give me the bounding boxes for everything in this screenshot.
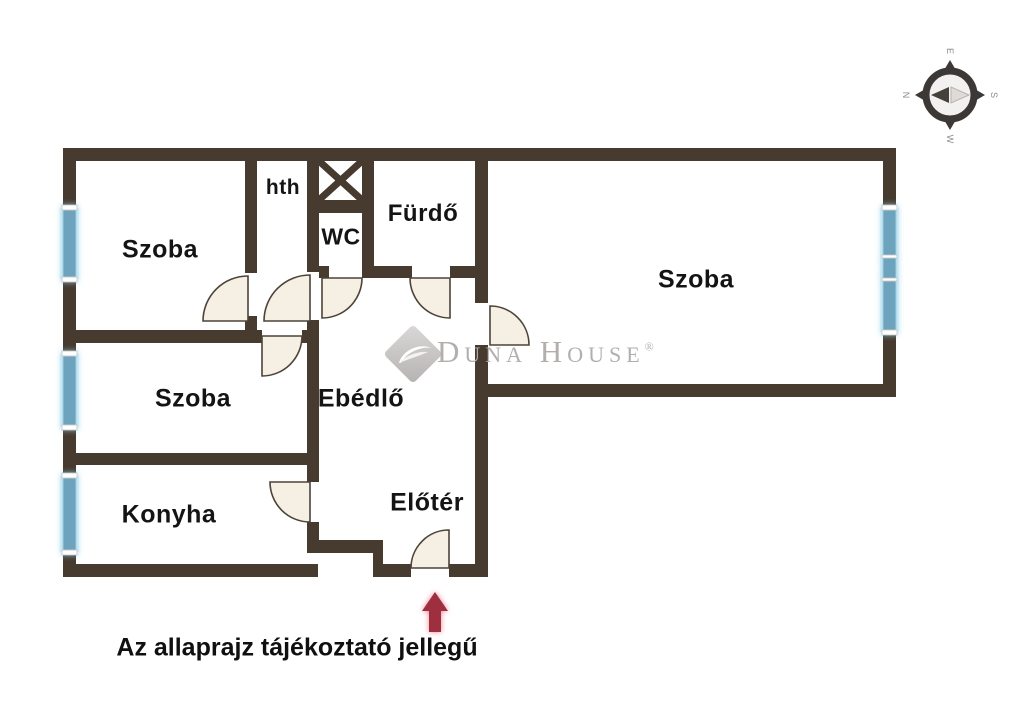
- door-swing-wc: [322, 278, 362, 318]
- room-label-eloter: Előtér: [390, 489, 464, 518]
- door-swing-hth: [264, 275, 310, 321]
- room-label-szoba-middle: Szoba: [155, 385, 231, 414]
- floorplan-page: E S W N Szoba hth WC Fürdő Szoba Ebédlő …: [0, 0, 1024, 710]
- room-label-hth: hth: [266, 176, 300, 200]
- watermark-brand: Duna House: [437, 334, 645, 369]
- window-marker: [63, 210, 76, 277]
- compass-letter-top: E: [945, 48, 955, 54]
- watermark-text: Duna House®: [437, 334, 654, 370]
- compass-letter-left: N: [901, 92, 911, 99]
- room-label-furdo: Fürdő: [388, 200, 458, 228]
- compass-letter-bottom: W: [945, 135, 955, 144]
- registered-mark: ®: [645, 340, 654, 354]
- door-swing-szoba-top: [203, 276, 248, 321]
- window-marker: [883, 281, 896, 330]
- entrance-arrow-icon: [422, 592, 448, 632]
- disclaimer-text: Az allaprajz tájékoztató jellegű: [116, 634, 477, 663]
- room-label-wc: WC: [321, 224, 360, 251]
- room-label-konyha: Konyha: [122, 501, 217, 530]
- door-swing-furdo: [410, 278, 450, 318]
- room-label-szoba-top-left: Szoba: [122, 236, 198, 265]
- window-marker: [883, 258, 896, 279]
- room-label-szoba-right: Szoba: [658, 266, 734, 295]
- window-marker: [63, 478, 76, 550]
- window-marker: [883, 210, 896, 256]
- watermark-logo-icon: [383, 324, 442, 383]
- light-shaft-x-icon: [319, 161, 362, 200]
- compass-rose-icon: E S W N: [901, 48, 999, 144]
- door-swing-konyha: [270, 482, 310, 522]
- door-swing-entrance: [411, 530, 449, 568]
- door-swing-szoba-middle: [262, 336, 302, 376]
- window-marker: [63, 356, 76, 425]
- room-label-ebedlo: Ebédlő: [318, 385, 404, 414]
- compass-letter-right: S: [989, 92, 999, 98]
